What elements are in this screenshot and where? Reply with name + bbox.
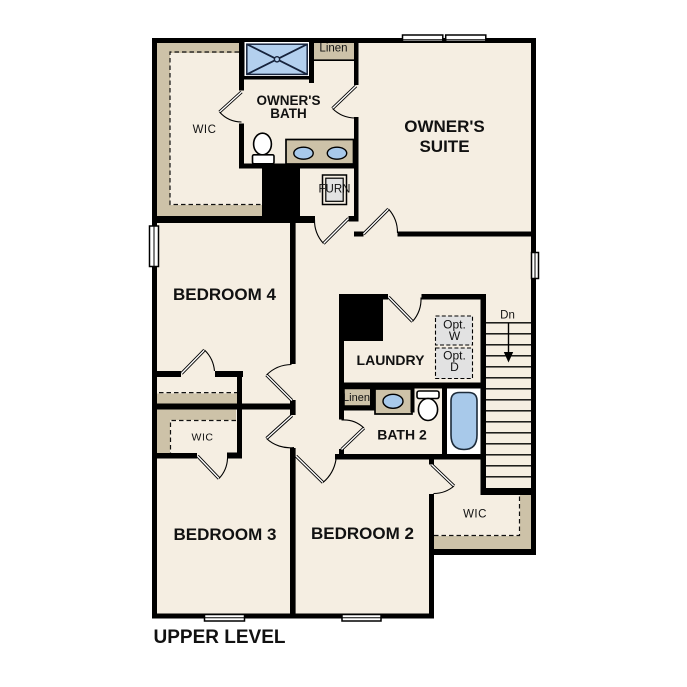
svg-text:FURN: FURN	[319, 184, 351, 196]
svg-text:WIC: WIC	[463, 509, 487, 521]
svg-text:Dn: Dn	[500, 310, 515, 322]
svg-text:WIC: WIC	[192, 431, 214, 443]
svg-text:LAUNDRY: LAUNDRY	[357, 352, 426, 368]
svg-text:BATH 2: BATH 2	[377, 427, 427, 443]
svg-text:BATH: BATH	[270, 106, 307, 121]
svg-text:BEDROOM 2: BEDROOM 2	[311, 524, 414, 543]
svg-text:Linen: Linen	[319, 43, 347, 55]
svg-text:W: W	[449, 329, 461, 343]
svg-text:BEDROOM 4: BEDROOM 4	[173, 285, 277, 304]
svg-text:WIC: WIC	[193, 124, 217, 136]
svg-text:Linen: Linen	[343, 392, 370, 404]
svg-text:SUITE: SUITE	[419, 137, 469, 156]
svg-text:UPPER LEVEL: UPPER LEVEL	[154, 627, 286, 648]
svg-text:D: D	[450, 360, 459, 374]
svg-text:OWNER'S: OWNER'S	[404, 117, 485, 136]
svg-text:BEDROOM 3: BEDROOM 3	[174, 525, 277, 544]
